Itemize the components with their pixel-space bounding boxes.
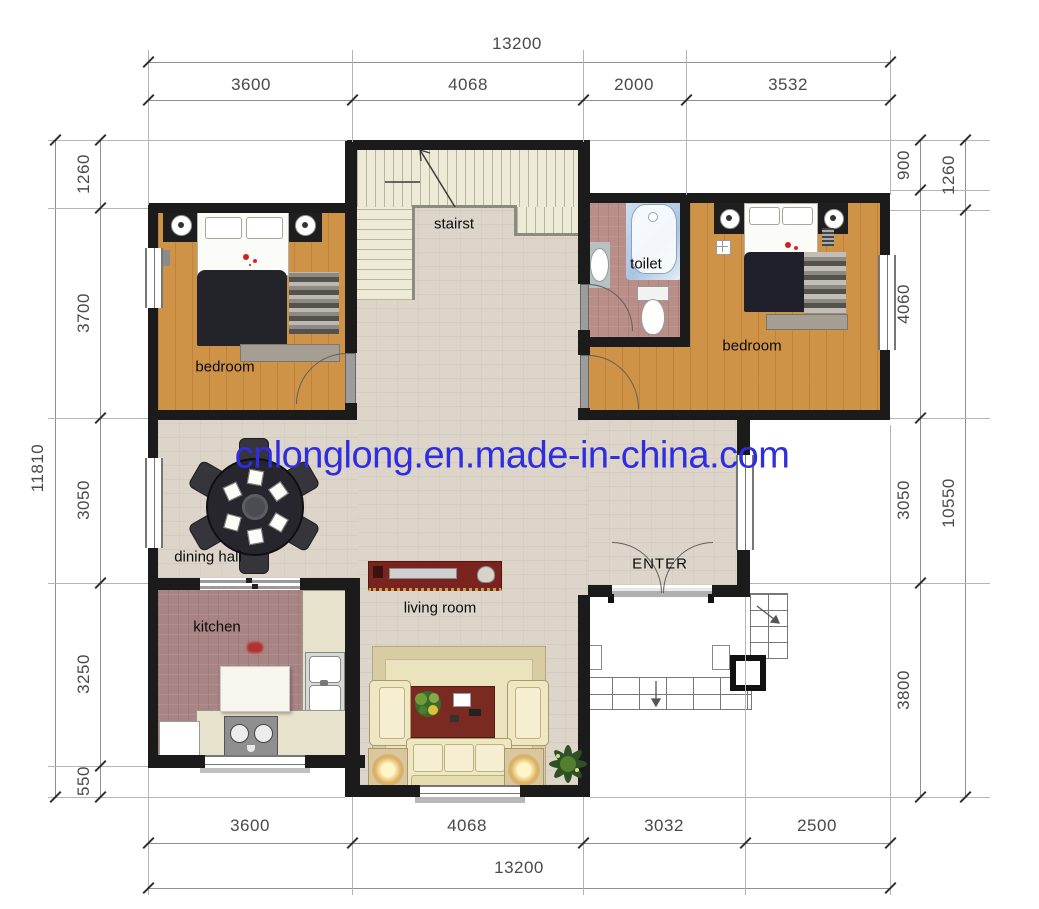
door-leaf [580, 355, 589, 410]
extension-line [48, 797, 345, 798]
stair-rail [514, 233, 578, 236]
floor-plan: 13200 3600 4068 2000 3532 3600 4068 3032… [0, 0, 1039, 909]
extension-line [583, 50, 584, 142]
room-label-bedroom-left: bedroom [195, 359, 254, 376]
kitchen-sink [305, 652, 345, 716]
wall-segment [148, 203, 355, 213]
dim-top-total: 13200 [492, 34, 542, 54]
dim-right-seg2: 4060 [894, 284, 914, 324]
wall-segment [347, 140, 588, 150]
dim-line [148, 62, 890, 63]
dim-bot-seg1: 3600 [230, 816, 270, 836]
room-label-enter: ENTER [632, 556, 688, 573]
dresser [289, 272, 339, 334]
dim-right-seg4: 3800 [894, 670, 914, 710]
dim-left-seg3: 3050 [74, 480, 94, 520]
dim-left-seg5: 550 [74, 766, 94, 796]
dim-top-seg1: 3600 [231, 75, 271, 95]
extension-line [890, 50, 891, 195]
dim-top-seg2: 4068 [448, 75, 488, 95]
armchair [507, 680, 549, 746]
dim-left-seg4: 3250 [74, 654, 94, 694]
stair-rail [412, 205, 517, 208]
wall-segment [578, 140, 590, 284]
window [145, 458, 163, 548]
wall-segment [345, 578, 360, 797]
window-sill [200, 768, 310, 773]
wall-segment [578, 193, 890, 203]
stove [224, 716, 278, 756]
wall-segment [578, 595, 590, 797]
extension-line [583, 797, 584, 895]
wall-segment [148, 420, 158, 458]
dim-bot-seg3: 3032 [644, 816, 684, 836]
porch-steps [750, 593, 788, 659]
nightstand [714, 202, 744, 234]
door-stop [252, 584, 258, 589]
dim-line [148, 100, 890, 101]
dim-bot-seg4: 2500 [797, 816, 837, 836]
dim-top-seg3: 2000 [614, 75, 654, 95]
wall-segment [148, 410, 357, 420]
extension-line [148, 768, 149, 895]
dim-line [100, 140, 101, 797]
extension-line [745, 597, 746, 895]
wall-segment [148, 308, 158, 420]
bed-blanket [197, 270, 287, 346]
porch-steps [585, 677, 752, 710]
dim-left-total: 11810 [28, 444, 48, 493]
extension-line [890, 425, 891, 895]
armchair [369, 680, 411, 746]
wall-segment [148, 578, 200, 590]
wall-segment [148, 755, 205, 768]
dim-left-seg1: 1260 [74, 154, 94, 194]
door-stop [246, 578, 252, 583]
wall-segment [345, 140, 357, 353]
sink-counter [588, 242, 610, 288]
extension-line [890, 210, 990, 211]
stair-rail [412, 205, 415, 300]
sliding-door-track [200, 586, 300, 589]
wall-segment [680, 193, 690, 347]
room-label-kitchen: kitchen [193, 619, 241, 636]
room-label-dining: dining hall [174, 549, 242, 566]
extension-line [890, 418, 990, 419]
door-leaf [580, 284, 589, 332]
extension-line [590, 140, 990, 141]
shoe-cabinet [712, 645, 730, 670]
extension-line [750, 583, 990, 584]
wall-segment [300, 578, 345, 590]
stair-rail [514, 205, 517, 235]
dim-line [920, 140, 921, 797]
dim-right-seg1: 900 [894, 150, 914, 180]
coffee-table [407, 686, 495, 738]
wall-segment [880, 193, 890, 255]
extension-line [352, 50, 353, 142]
wall-tv-icon [822, 228, 834, 246]
dim-top-seg4: 3532 [768, 75, 808, 95]
toilet-bowl [641, 299, 665, 335]
dim-right-outer2: 10550 [939, 478, 959, 528]
dim-bot-seg2: 4068 [447, 816, 487, 836]
dim-right-outer1: 1260 [939, 155, 959, 195]
floor-mat [247, 642, 263, 653]
stairs-landing [517, 207, 578, 235]
room-label-stairs: stairst [434, 216, 474, 233]
dim-left-seg2: 3700 [74, 293, 94, 333]
bed-bench [766, 314, 848, 330]
window [145, 248, 163, 308]
extension-line [352, 797, 353, 895]
extension-line [48, 140, 347, 141]
room-label-bedroom-right: bedroom [722, 338, 781, 355]
wall-segment [148, 203, 158, 248]
window-sill [415, 797, 525, 803]
porch-column [730, 655, 766, 691]
bed [197, 212, 289, 276]
tv-cabinet [368, 561, 502, 591]
wall-segment [578, 410, 890, 420]
door-leaf [345, 353, 356, 405]
bed-flowers [785, 242, 791, 248]
dim-line [148, 888, 890, 889]
kitchen-island [220, 666, 290, 712]
dresser [804, 252, 846, 322]
bed-flowers [243, 254, 249, 260]
stairs-upper-flight [357, 150, 578, 207]
room-label-living: living room [404, 600, 477, 617]
sofa [406, 738, 512, 792]
extension-line [590, 797, 990, 798]
wall-segment [578, 337, 690, 347]
vent-icon [716, 240, 731, 255]
extension-line [686, 50, 687, 195]
wall-segment [588, 585, 612, 597]
watermark: cnlonglong.en.made-in-china.com [235, 435, 790, 478]
dim-line [965, 140, 966, 797]
dim-right-seg3: 3050 [894, 480, 914, 520]
wall-segment [345, 785, 420, 797]
wall-segment [712, 585, 750, 597]
extension-line [148, 50, 149, 205]
dim-line [148, 843, 890, 844]
dim-bot-total: 13200 [494, 858, 544, 878]
stairs-lower-flight [357, 207, 412, 300]
dim-line [55, 140, 56, 797]
room-label-toilet: toilet [630, 256, 662, 273]
